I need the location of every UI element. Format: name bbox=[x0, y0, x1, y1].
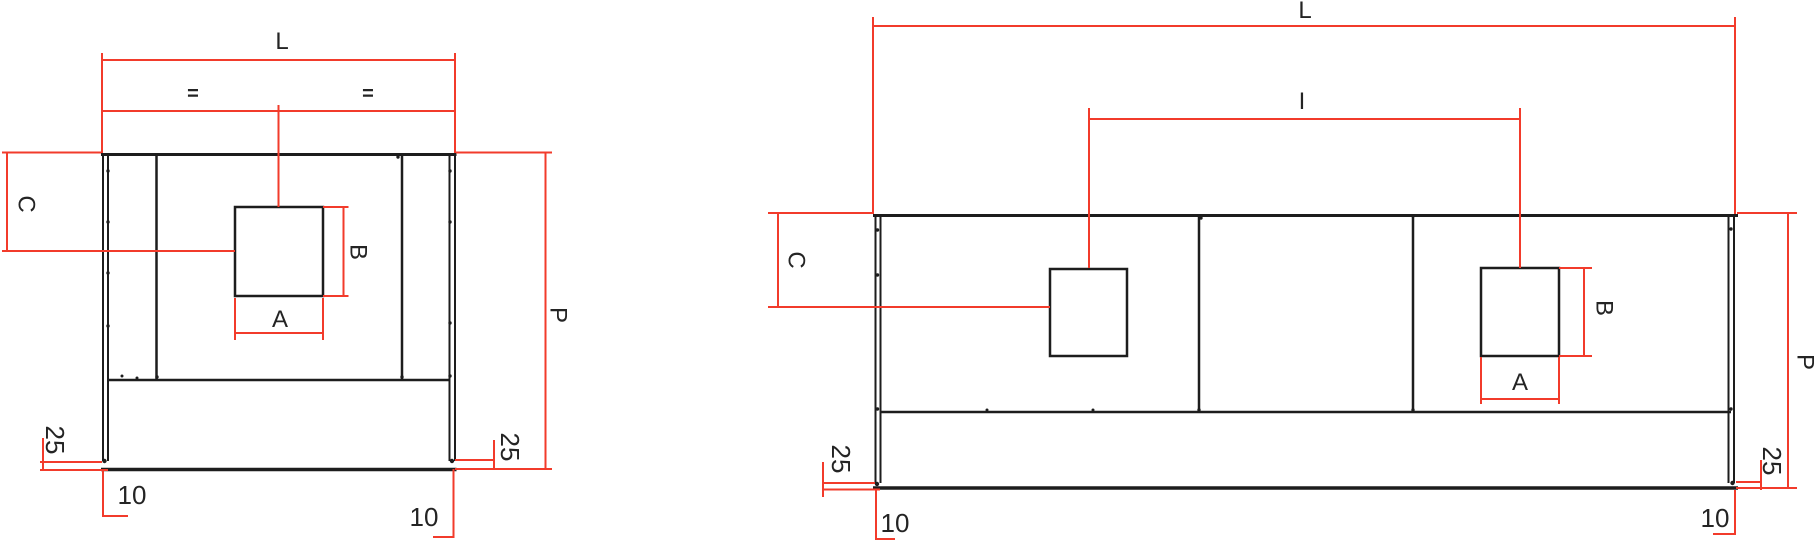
dim-I-label: I bbox=[1299, 88, 1306, 115]
dim-25-right-label: 25 bbox=[1757, 447, 1787, 476]
right-view: L I C B A bbox=[768, 0, 1815, 540]
dim-10-left-label: 10 bbox=[118, 480, 147, 510]
dim-25-left: 25 bbox=[823, 445, 880, 497]
dim-C-label: C bbox=[783, 251, 810, 268]
dim-25-left: 25 bbox=[40, 426, 108, 470]
dim-25-left-label: 25 bbox=[826, 445, 856, 474]
dim-A: A bbox=[1481, 357, 1559, 404]
dim-B: B bbox=[323, 207, 372, 296]
dim-10-left: 10 bbox=[103, 470, 146, 517]
technical-drawing-page: L = = C B A bbox=[0, 0, 1815, 544]
dim-10-left-label: 10 bbox=[881, 508, 910, 538]
dim-A-label: A bbox=[1512, 369, 1528, 396]
dim-P: P bbox=[456, 153, 572, 470]
dim-B-label: B bbox=[345, 244, 372, 260]
dim-C: C bbox=[2, 153, 235, 252]
dim-25-right-label: 25 bbox=[495, 433, 525, 462]
dimension-drawing: L = = C B A bbox=[0, 0, 1815, 544]
equal-left-label: = bbox=[187, 83, 199, 105]
hole-square bbox=[235, 207, 323, 296]
dim-C-label: C bbox=[13, 195, 40, 212]
equal-right-label: = bbox=[362, 83, 374, 105]
hole-square-right bbox=[1481, 268, 1559, 356]
dim-L-label: L bbox=[1298, 0, 1311, 24]
right-view-frame bbox=[873, 214, 1738, 488]
dim-P-label: P bbox=[545, 307, 572, 323]
dim-10-right: 10 bbox=[1701, 490, 1735, 535]
dim-P-label: P bbox=[1792, 354, 1815, 370]
dim-10-left: 10 bbox=[876, 490, 909, 540]
left-view: L = = C B A bbox=[2, 28, 572, 538]
dim-B: B bbox=[1559, 268, 1618, 356]
dim-25-right: 25 bbox=[455, 433, 552, 469]
dim-B-label: B bbox=[1591, 300, 1618, 316]
dim-10-right-label: 10 bbox=[1701, 503, 1730, 533]
dim-10-right: 10 bbox=[410, 469, 454, 538]
dim-C: C bbox=[768, 213, 1050, 307]
dim-A-label: A bbox=[272, 306, 288, 333]
right-view-dots bbox=[875, 214, 1735, 486]
dim-I: I bbox=[1089, 88, 1520, 268]
dim-10-right-label: 10 bbox=[410, 502, 439, 532]
dim-L-label: L bbox=[275, 28, 288, 55]
dim-25-left-label: 25 bbox=[40, 426, 70, 455]
hole-square-left bbox=[1050, 269, 1127, 356]
dim-A: A bbox=[235, 298, 323, 340]
